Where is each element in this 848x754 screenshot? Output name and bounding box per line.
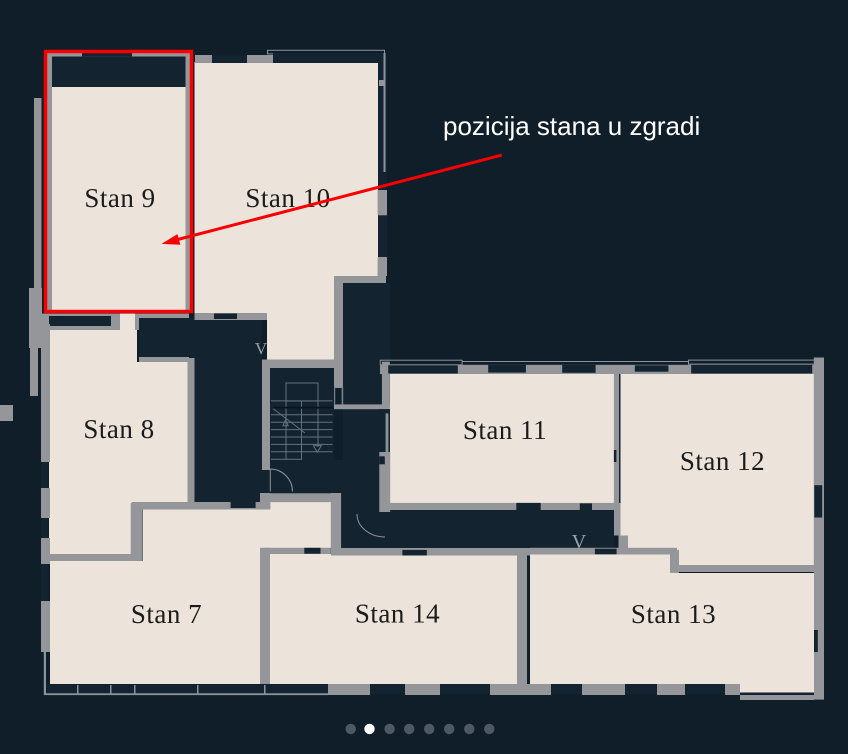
svg-text:Stan 11: Stan 11 — [463, 415, 547, 445]
svg-text:V: V — [255, 339, 268, 358]
svg-text:Stan 10: Stan 10 — [245, 183, 330, 213]
svg-text:Stan 9: Stan 9 — [84, 183, 155, 213]
svg-text:pozicija stana u zgradi: pozicija stana u zgradi — [443, 111, 700, 141]
svg-text:Stan 8: Stan 8 — [83, 414, 154, 444]
svg-text:Stan 12: Stan 12 — [680, 446, 765, 476]
svg-text:Stan 13: Stan 13 — [631, 599, 716, 629]
svg-text:Stan 14: Stan 14 — [355, 599, 440, 629]
svg-text:Stan 7: Stan 7 — [131, 599, 202, 629]
